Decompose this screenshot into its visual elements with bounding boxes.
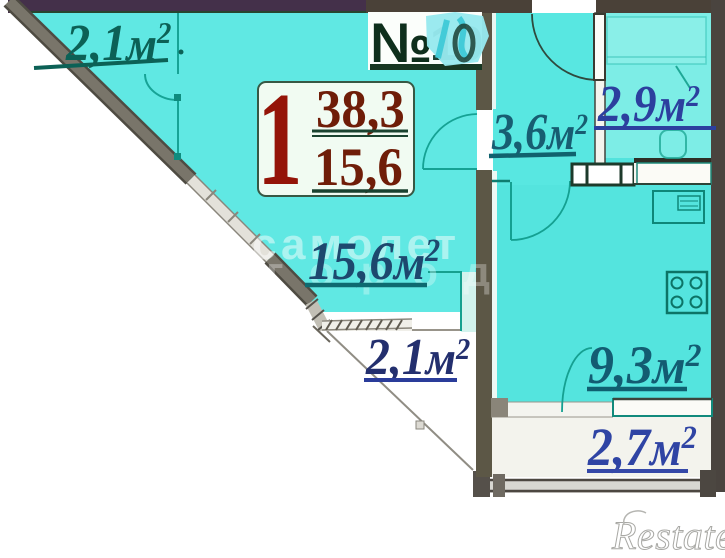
svg-text:15,6м2: 15,6м2 <box>308 232 440 292</box>
svg-text:2,9м2: 2,9м2 <box>597 75 700 133</box>
svg-text:1: 1 <box>257 65 303 214</box>
svg-text:15,6: 15,6 <box>314 138 403 198</box>
svg-text:9,3м2: 9,3м2 <box>588 336 702 395</box>
svg-text:2,1м2: 2,1м2 <box>365 327 470 385</box>
svg-text:2,7м2: 2,7м2 <box>587 418 697 477</box>
svg-text:Restate: Restate <box>611 513 725 553</box>
